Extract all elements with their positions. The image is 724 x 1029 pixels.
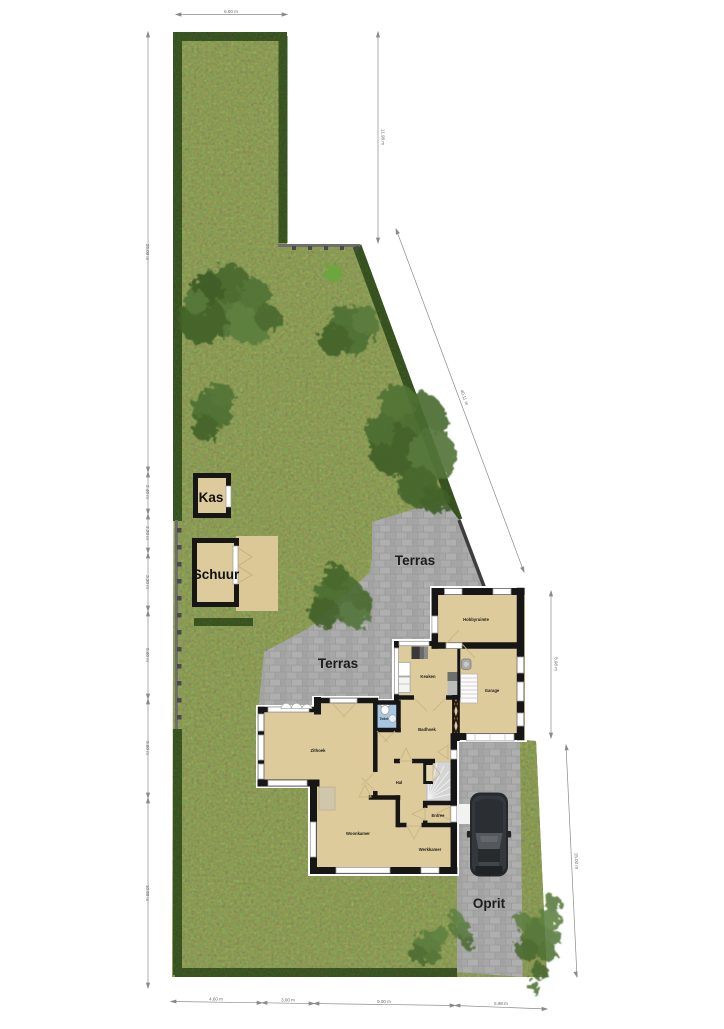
svg-text:Hobbyruimte: Hobbyruimte	[463, 617, 489, 622]
svg-text:Schuur: Schuur	[193, 567, 240, 582]
svg-text:4.60 m: 4.60 m	[209, 997, 223, 1002]
svg-text:Woonkamer: Woonkamer	[346, 831, 370, 836]
svg-text:Garage: Garage	[485, 688, 500, 693]
svg-text:Badhoek: Badhoek	[418, 727, 436, 732]
svg-text:15.00 m: 15.00 m	[574, 853, 580, 870]
svg-text:Zithoek: Zithoek	[311, 748, 327, 753]
svg-text:9.00 m: 9.00 m	[377, 999, 391, 1004]
svg-text:3.30 m: 3.30 m	[145, 575, 150, 589]
svg-text:25.00 m: 25.00 m	[145, 244, 150, 261]
svg-text:5.98 m: 5.98 m	[494, 1001, 508, 1006]
svg-text:8.98 m: 8.98 m	[554, 657, 559, 671]
svg-text:Terras: Terras	[395, 553, 435, 568]
svg-text:5.60 m: 5.60 m	[145, 741, 150, 755]
svg-text:Werkkamer: Werkkamer	[419, 847, 442, 852]
svg-text:3.00 m: 3.00 m	[281, 998, 295, 1003]
svg-text:Toilet: Toilet	[380, 717, 390, 721]
svg-text:Entree: Entree	[431, 813, 445, 818]
svg-text:Oprit: Oprit	[473, 896, 506, 911]
svg-text:Keuken: Keuken	[420, 674, 436, 679]
svg-text:5.00 m: 5.00 m	[145, 648, 150, 662]
svg-text:2.40 m: 2.40 m	[145, 485, 150, 499]
svg-text:Hal: Hal	[396, 780, 403, 785]
svg-text:2.20 m: 2.20 m	[145, 526, 150, 540]
svg-text:Terras: Terras	[318, 656, 358, 671]
svg-text:Kas: Kas	[199, 490, 224, 505]
svg-text:6.00 m: 6.00 m	[224, 9, 238, 14]
svg-text:10.80 m: 10.80 m	[145, 885, 150, 902]
svg-text:11.98 m: 11.98 m	[381, 129, 386, 145]
